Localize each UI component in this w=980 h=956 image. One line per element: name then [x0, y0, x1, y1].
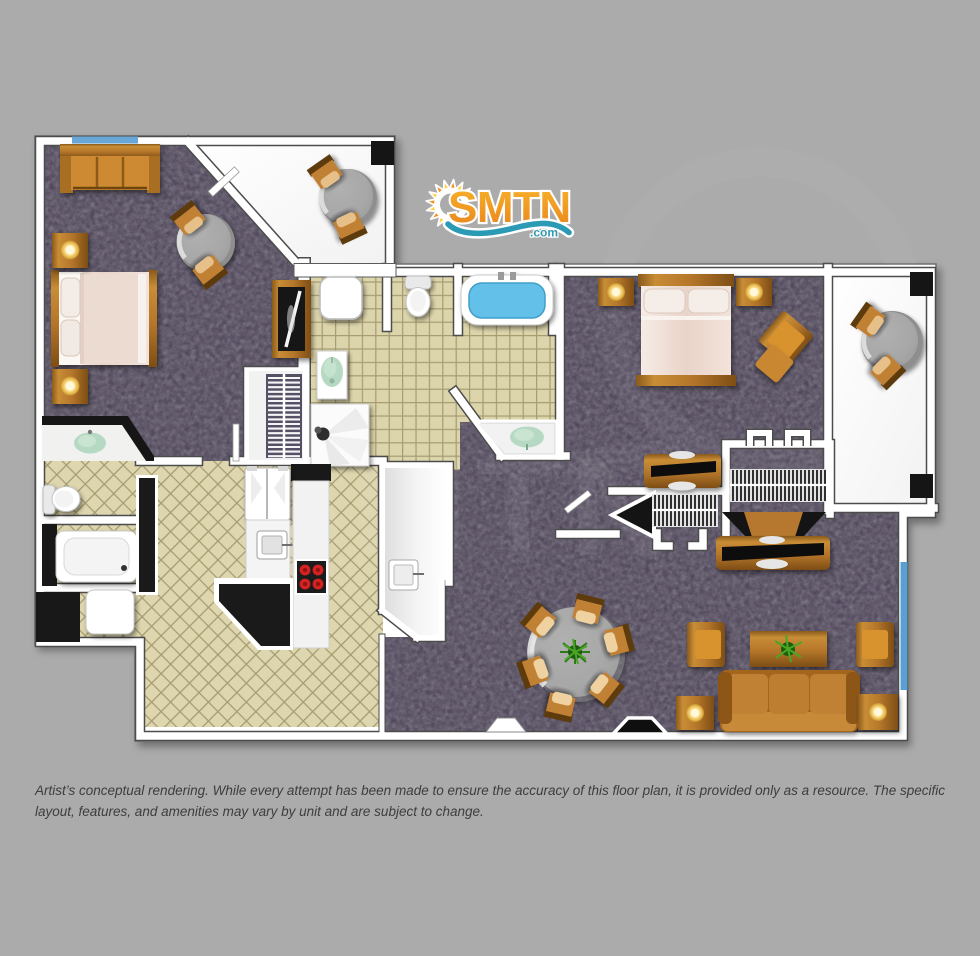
svg-text:layout, features, and amenitie: layout, features, and amenities may vary… [35, 804, 484, 819]
svg-text:.com: .com [530, 226, 558, 240]
svg-text:Artist’s conceptual rendering.: Artist’s conceptual rendering. While eve… [34, 783, 945, 798]
